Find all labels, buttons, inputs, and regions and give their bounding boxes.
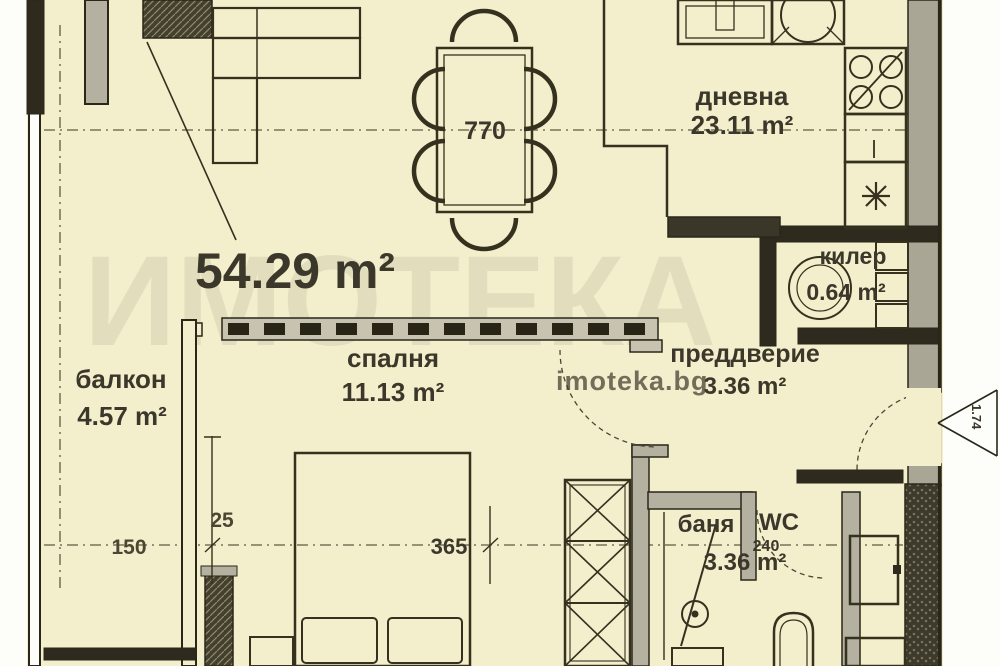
- bedroom-area: 11.13 m²: [342, 377, 445, 407]
- wall-bath-north: [648, 492, 752, 509]
- outside-right: [943, 0, 1000, 666]
- bathroom-area: 3.36 m²: [704, 549, 787, 576]
- wall-right-mid: [908, 464, 941, 486]
- balcony-width-label: 150: [111, 536, 146, 559]
- living-room-label: дневна: [696, 81, 789, 111]
- wall-bedroom-pier: [205, 574, 233, 666]
- bedroom-label: спалня: [347, 343, 439, 373]
- floor-plan-drawing: ИМОТЕКА: [0, 0, 1000, 666]
- wall-step: [630, 340, 662, 352]
- storage-label: килер: [820, 243, 887, 269]
- wall-shaft-north: [797, 470, 903, 483]
- snowflake-icon: [862, 182, 890, 210]
- shower-head-dot: [692, 611, 698, 617]
- balcony-label: балкон: [75, 364, 166, 394]
- wall-bedroom-pier-cap: [201, 566, 237, 576]
- watermark-site: imoteka.bg: [556, 366, 709, 396]
- living-room-area: 23.11 m²: [691, 110, 794, 140]
- wall-balcony-bottom: [44, 648, 196, 660]
- wall-balcony-top-pier: [27, 0, 44, 114]
- wall-storage-left: [760, 226, 776, 346]
- cabinet-handle: [893, 565, 901, 574]
- outside-left: [0, 0, 27, 666]
- wall-thickness-label: 25: [210, 509, 234, 532]
- table-dimension-label: 770: [464, 117, 506, 145]
- hallway-area: 3.36 m²: [704, 373, 787, 400]
- balcony-railing: [29, 55, 40, 666]
- total-area-label: 54.29 m²: [195, 243, 395, 299]
- entrance-opening: [906, 388, 941, 466]
- wall-living-west: [85, 0, 108, 104]
- bathroom-label: баня: [678, 511, 735, 538]
- floor-plan: ИМОТЕКА: [0, 0, 1000, 666]
- wall-kitchen-south: [668, 217, 780, 237]
- wall-bedroom-west: [182, 320, 196, 666]
- wall-top-hatched-pier: [143, 0, 212, 38]
- storage-area: 0.64 m²: [806, 279, 886, 305]
- entrance-width-label: 1.74: [969, 404, 984, 430]
- wc-label: WC: [759, 509, 799, 536]
- bedroom-width-label: 365: [431, 534, 468, 559]
- wall-right-lower-hatched: [905, 484, 941, 666]
- hallway-label: преддверие: [670, 340, 820, 368]
- wall-bath-west: [632, 445, 649, 666]
- balcony-area: 4.57 m²: [77, 401, 167, 431]
